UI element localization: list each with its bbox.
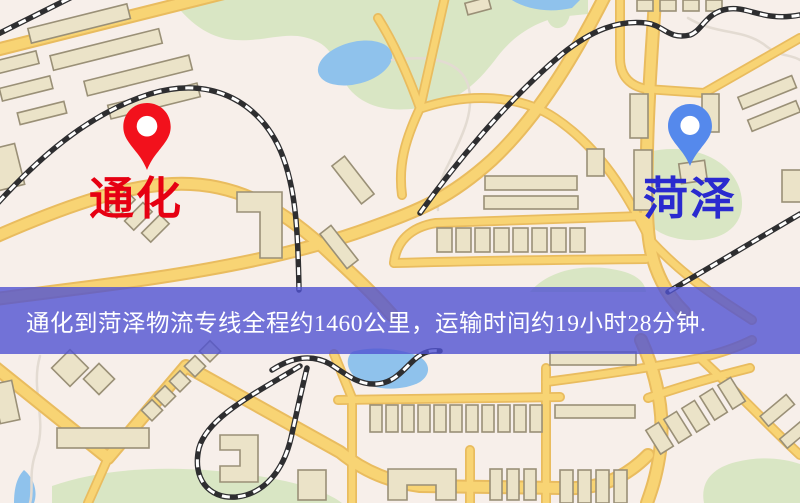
map-background [0,0,800,503]
destination-marker[interactable]: 菏泽 [643,103,737,222]
map-screenshot: 通化到菏泽物流专线全程约1460公里，运输时间约19小时28分钟. 通化 菏泽 [0,0,800,503]
origin-label: 通化 [89,177,183,222]
origin-marker[interactable]: 通化 [111,102,183,222]
destination-label: 菏泽 [643,177,737,222]
route-info-banner: 通化到菏泽物流专线全程约1460公里，运输时间约19小时28分钟. [0,287,800,354]
route-info-text: 通化到菏泽物流专线全程约1460公里，运输时间约19小时28分钟. [26,304,706,338]
origin-pin-icon[interactable] [121,102,173,171]
destination-pin-icon[interactable] [666,103,714,167]
